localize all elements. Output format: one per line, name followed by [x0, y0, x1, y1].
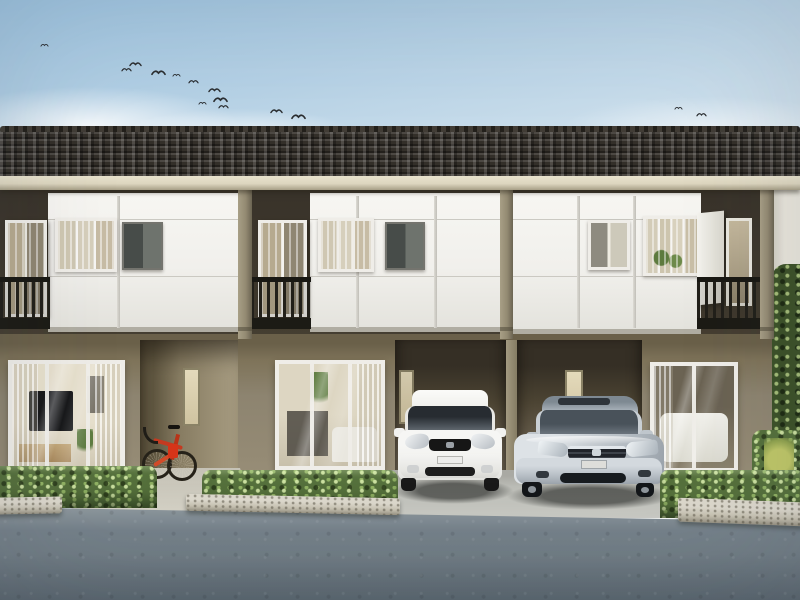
- bird-icon: [696, 105, 707, 121]
- car-logo: [446, 442, 454, 448]
- bicycle-handlebar: [143, 427, 158, 444]
- glass-reflection: [279, 364, 381, 466]
- license-plate: [581, 460, 607, 469]
- bird-icon: [40, 37, 48, 49]
- car-sunroof: [558, 398, 610, 405]
- upper-dark-window-unit1: [122, 222, 163, 270]
- living-room-window-unit1: [8, 360, 125, 470]
- bird-icon: [188, 72, 199, 88]
- license-plate: [437, 456, 463, 464]
- bird-icon: [674, 100, 682, 112]
- upper-dark-window-unit2: [385, 222, 425, 270]
- upper-curtained-window-unit2: [318, 218, 374, 272]
- car-windshield: [405, 406, 495, 433]
- silver-sedan: [514, 396, 664, 498]
- fog-light: [481, 465, 493, 473]
- upper-curtained-window-unit1: [55, 218, 117, 272]
- bicycle-bag: [168, 444, 178, 458]
- car-wheel: [636, 483, 654, 497]
- living-room-window-unit2: [275, 360, 385, 470]
- bird-icon: [151, 58, 166, 81]
- bird-icon: [172, 67, 180, 79]
- facade-pillar-left: [238, 183, 252, 339]
- panel-groove: [577, 196, 580, 328]
- upper-curtained-window-unit3: [643, 216, 700, 276]
- car-logo: [592, 449, 601, 456]
- fog-light: [407, 465, 419, 473]
- curb-left: [0, 496, 62, 514]
- panel-groove: [117, 196, 120, 328]
- panel-groove: [633, 196, 636, 328]
- fog-light: [536, 471, 549, 478]
- roof-fascia: [0, 176, 800, 190]
- white-hatchback: [398, 390, 502, 492]
- glass-reflection: [12, 364, 121, 466]
- balcony-railing-unit3: [697, 277, 763, 329]
- car-wheel: [401, 478, 416, 491]
- roof-tiles: [0, 132, 800, 177]
- bird-icon: [270, 99, 283, 118]
- car-wheel: [522, 482, 542, 497]
- townhouse-render-scene: [0, 0, 800, 600]
- bird-icon: [291, 102, 306, 125]
- upper-two-pane-window-unit3: [588, 220, 630, 270]
- facade-pillar-middle: [500, 183, 513, 339]
- facade-pillar-right: [760, 183, 774, 339]
- bird-icon: [198, 95, 206, 107]
- bumper-intake: [425, 467, 475, 476]
- panel-groove: [434, 196, 437, 328]
- bird-icon: [129, 52, 142, 71]
- bicycle-seat: [168, 425, 180, 429]
- bumper-intake: [560, 473, 626, 483]
- balcony-railing-unit2: [251, 277, 311, 329]
- fog-light: [638, 470, 651, 477]
- car-wheel: [484, 478, 499, 491]
- curb-right: [678, 498, 800, 527]
- glass-reflection: [654, 366, 734, 468]
- bird-icon: [218, 97, 229, 113]
- balcony-railing-unit1: [0, 277, 50, 329]
